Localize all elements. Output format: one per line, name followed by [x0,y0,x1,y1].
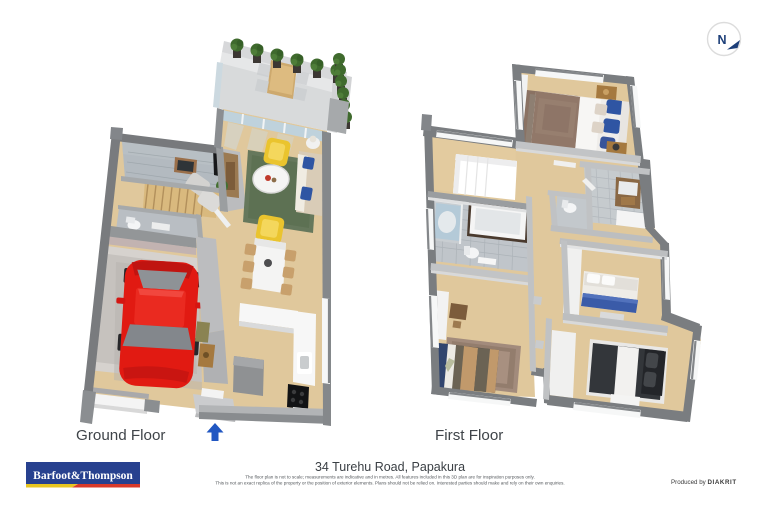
svg-text:Produced by DIAKRIT: Produced by DIAKRIT [671,479,737,486]
svg-text:This is not an exact replica o: This is not an exact replica of the prop… [215,481,564,486]
svg-text:N: N [717,33,726,47]
svg-text:The floor plan is not to scale: The floor plan is not to scale; measurem… [245,475,534,480]
svg-text:34 Turehu Road, Papakura: 34 Turehu Road, Papakura [315,460,465,474]
svg-text:Ground Floor: Ground Floor [76,427,165,444]
svg-text:First Floor: First Floor [435,427,503,444]
svg-text:Barfoot&Thompson: Barfoot&Thompson [33,470,133,482]
